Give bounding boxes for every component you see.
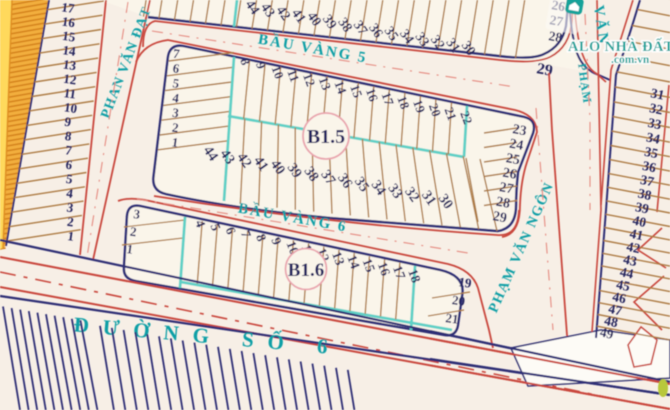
svg-text:B1.5: B1.5	[307, 126, 345, 148]
svg-text:20: 20	[451, 292, 466, 309]
svg-text:.com.vn: .com.vn	[611, 54, 650, 66]
svg-text:11: 11	[63, 85, 77, 102]
svg-text:21: 21	[445, 310, 460, 327]
svg-text:29: 29	[535, 60, 554, 80]
svg-text:13: 13	[62, 57, 77, 74]
svg-text:29: 29	[492, 209, 508, 226]
svg-text:19: 19	[458, 274, 473, 291]
svg-text:16: 16	[61, 14, 76, 31]
svg-text:ALO NHÀ ĐẤT: ALO NHÀ ĐẤT	[568, 38, 670, 55]
svg-text:B1.6: B1.6	[288, 260, 324, 281]
svg-text:10: 10	[63, 99, 78, 116]
svg-text:17: 17	[61, 0, 76, 16]
svg-text:15: 15	[61, 28, 76, 45]
svg-text:12: 12	[62, 71, 77, 88]
svg-text:14: 14	[62, 42, 77, 59]
